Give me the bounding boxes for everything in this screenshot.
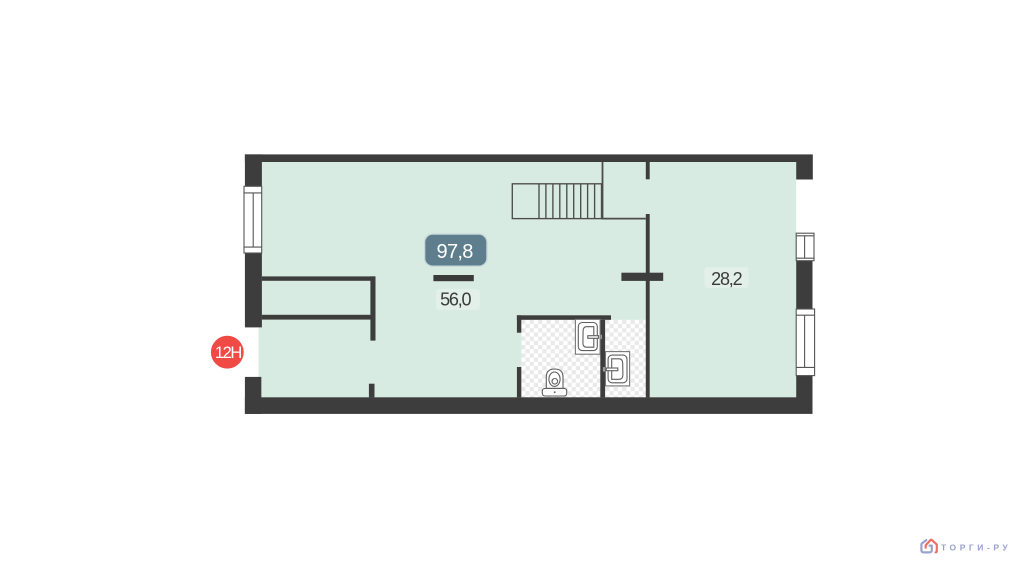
svg-text:12Н: 12Н	[215, 344, 242, 362]
svg-text:56,0: 56,0	[440, 290, 471, 310]
svg-text:ТОРГИ-РУ: ТОРГИ-РУ	[941, 543, 1011, 553]
svg-text:97,8: 97,8	[437, 241, 474, 263]
svg-text:28,2: 28,2	[711, 269, 742, 289]
